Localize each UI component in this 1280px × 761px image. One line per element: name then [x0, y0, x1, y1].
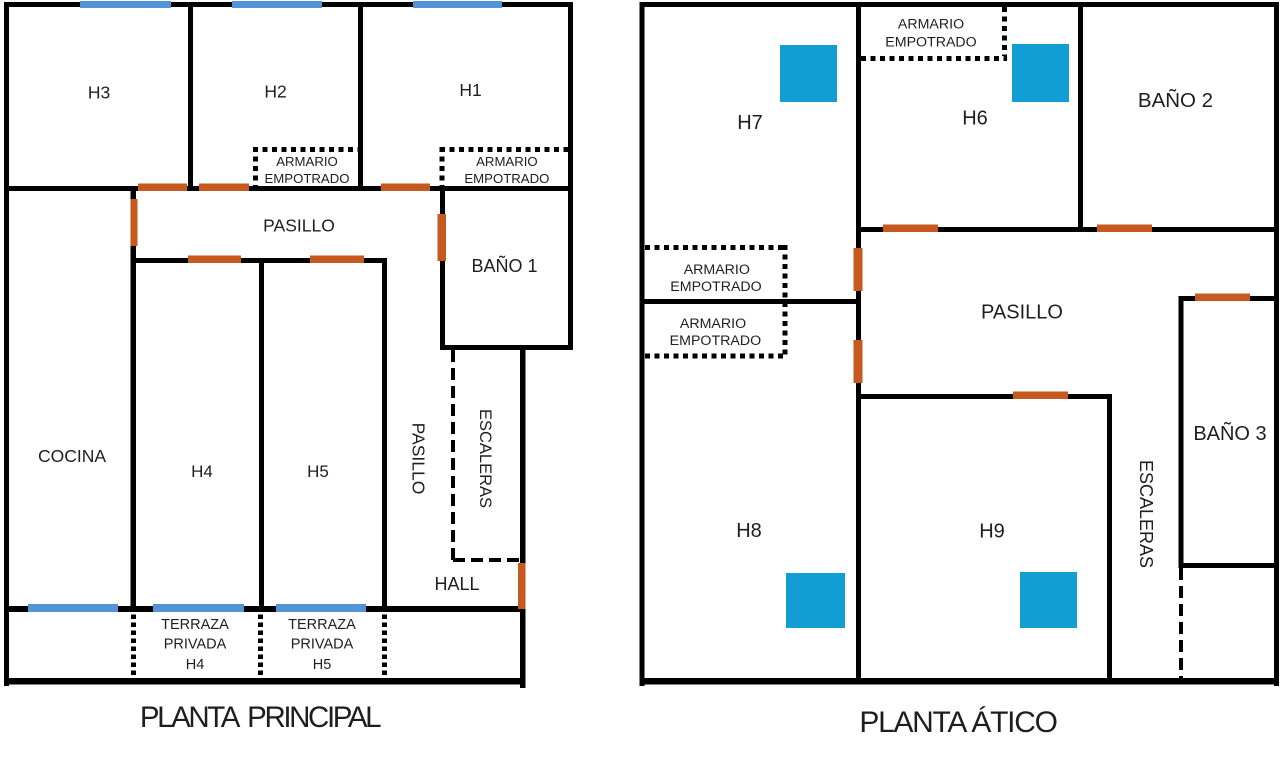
svg-text:PASILLO: PASILLO: [263, 216, 335, 236]
svg-text:ARMARIO: ARMARIO: [684, 262, 750, 278]
svg-text:EMPOTRADO: EMPOTRADO: [670, 333, 761, 349]
svg-text:H4: H4: [191, 462, 213, 481]
svg-text:TERRAZA: TERRAZA: [161, 617, 229, 633]
svg-text:ARMARIO: ARMARIO: [276, 154, 338, 169]
svg-text:H5: H5: [307, 462, 329, 481]
svg-text:PRIVADA: PRIVADA: [291, 637, 354, 653]
svg-text:EMPOTRADO: EMPOTRADO: [464, 171, 549, 186]
svg-text:ARMARIO: ARMARIO: [476, 154, 538, 169]
svg-text:EMPOTRADO: EMPOTRADO: [265, 171, 350, 186]
svg-text:H8: H8: [736, 520, 762, 542]
svg-text:EMPOTRADO: EMPOTRADO: [885, 35, 976, 51]
svg-text:H2: H2: [264, 82, 286, 102]
svg-text:H5: H5: [313, 657, 332, 673]
svg-text:TERRAZA: TERRAZA: [288, 617, 356, 633]
svg-text:ARMARIO: ARMARIO: [680, 316, 746, 332]
svg-text:PLANTA ÁTICO: PLANTA ÁTICO: [859, 706, 1056, 739]
svg-text:EMPOTRADO: EMPOTRADO: [670, 279, 761, 295]
svg-text:PRIVADA: PRIVADA: [164, 637, 227, 653]
svg-text:COCINA: COCINA: [38, 446, 106, 466]
svg-text:H3: H3: [88, 83, 110, 103]
svg-text:PASILLO: PASILLO: [409, 423, 429, 495]
svg-text:BAÑO 2: BAÑO 2: [1138, 89, 1213, 112]
svg-text:H9: H9: [979, 521, 1005, 543]
svg-text:H7: H7: [737, 112, 763, 134]
svg-text:ESCALERAS: ESCALERAS: [1136, 460, 1156, 568]
svg-text:PLANTA PRINCIPAL: PLANTA PRINCIPAL: [140, 701, 381, 734]
svg-text:HALL: HALL: [434, 574, 479, 594]
svg-text:ESCALERAS: ESCALERAS: [476, 409, 494, 508]
svg-text:PASILLO: PASILLO: [981, 302, 1063, 324]
svg-text:ARMARIO: ARMARIO: [898, 17, 964, 33]
svg-text:H4: H4: [186, 657, 205, 673]
svg-text:H6: H6: [962, 108, 988, 130]
svg-text:BAÑO 3: BAÑO 3: [1193, 421, 1266, 445]
svg-text:BAÑO 1: BAÑO 1: [471, 255, 537, 276]
svg-text:H1: H1: [459, 80, 481, 100]
